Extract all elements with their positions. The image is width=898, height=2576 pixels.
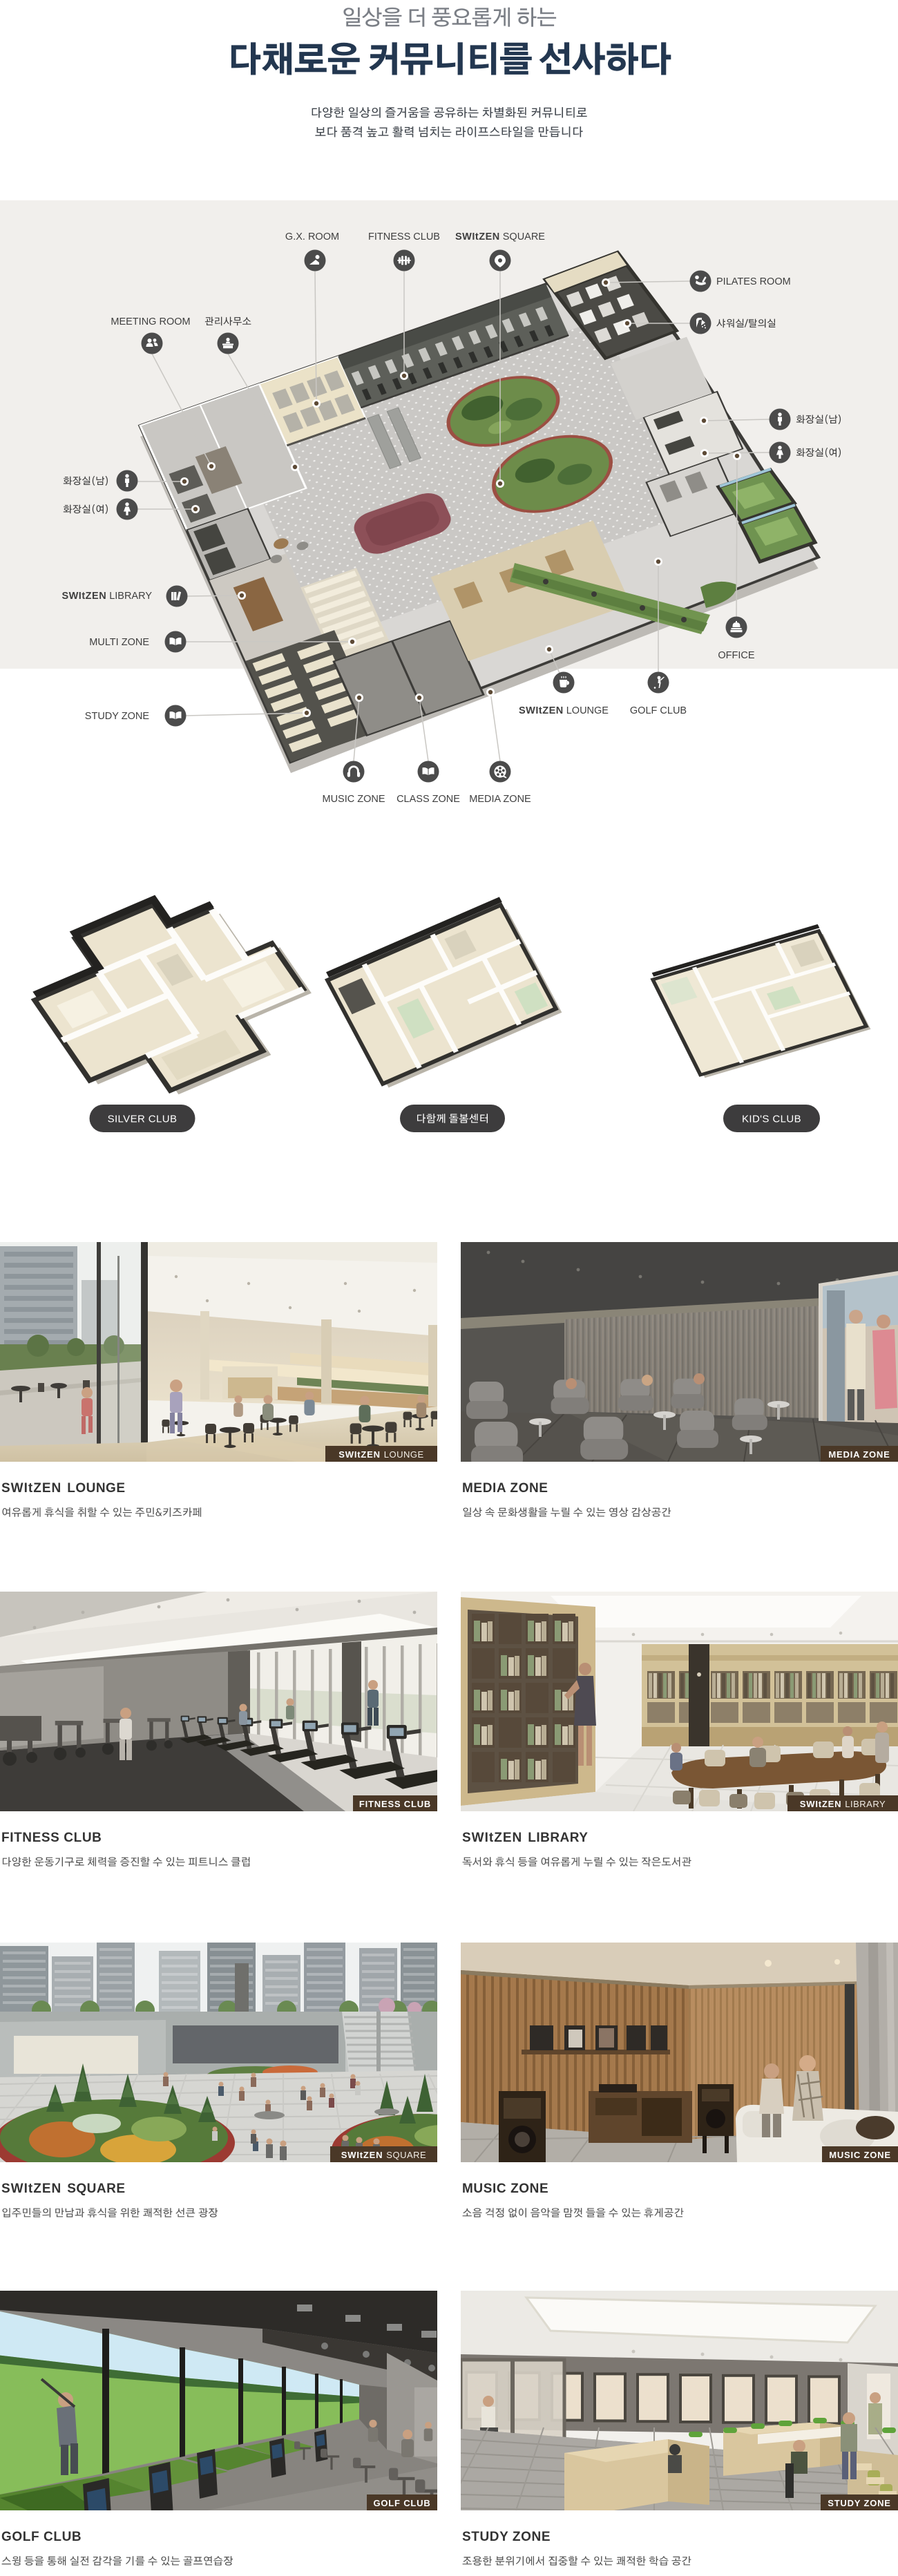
svg-text:GOLF CLUB: GOLF CLUB	[630, 705, 687, 716]
svg-text:MULTI ZONE: MULTI ZONE	[89, 637, 149, 648]
svg-text:GOLF CLUB: GOLF CLUB	[373, 2498, 430, 2508]
svg-text:SWItZEN LOUNGE: SWItZEN LOUNGE	[519, 705, 609, 716]
svg-text:KID'S CLUB: KID'S CLUB	[742, 1114, 801, 1125]
svg-text:MEETING ROOM: MEETING ROOM	[111, 316, 190, 327]
svg-text:CLASS ZONE: CLASS ZONE	[397, 794, 460, 805]
svg-text:FITNESS CLUB: FITNESS CLUB	[359, 1799, 431, 1809]
svg-text:SWItZEN SQUARE: SWItZEN SQUARE	[455, 231, 545, 242]
svg-text:STUDY ZONE: STUDY ZONE	[85, 711, 150, 722]
svg-text:G.X. ROOM: G.X. ROOM	[285, 231, 339, 242]
svg-text:STUDY ZONE: STUDY ZONE	[828, 2498, 891, 2508]
svg-text:OFFICE: OFFICE	[718, 650, 754, 661]
svg-text:SILVER CLUB: SILVER CLUB	[108, 1114, 178, 1125]
svg-text:MUSIC ZONE: MUSIC ZONE	[829, 2150, 891, 2160]
svg-text:FITNESS CLUB: FITNESS CLUB	[368, 231, 440, 242]
svg-text:MUSIC ZONE: MUSIC ZONE	[322, 794, 385, 805]
svg-text:MEDIA ZONE: MEDIA ZONE	[828, 1449, 890, 1460]
svg-text:PILATES ROOM: PILATES ROOM	[716, 276, 791, 287]
svg-text:MEDIA ZONE: MEDIA ZONE	[469, 794, 531, 805]
svg-text:SWItZEN LIBRARY: SWItZEN LIBRARY	[61, 591, 152, 602]
